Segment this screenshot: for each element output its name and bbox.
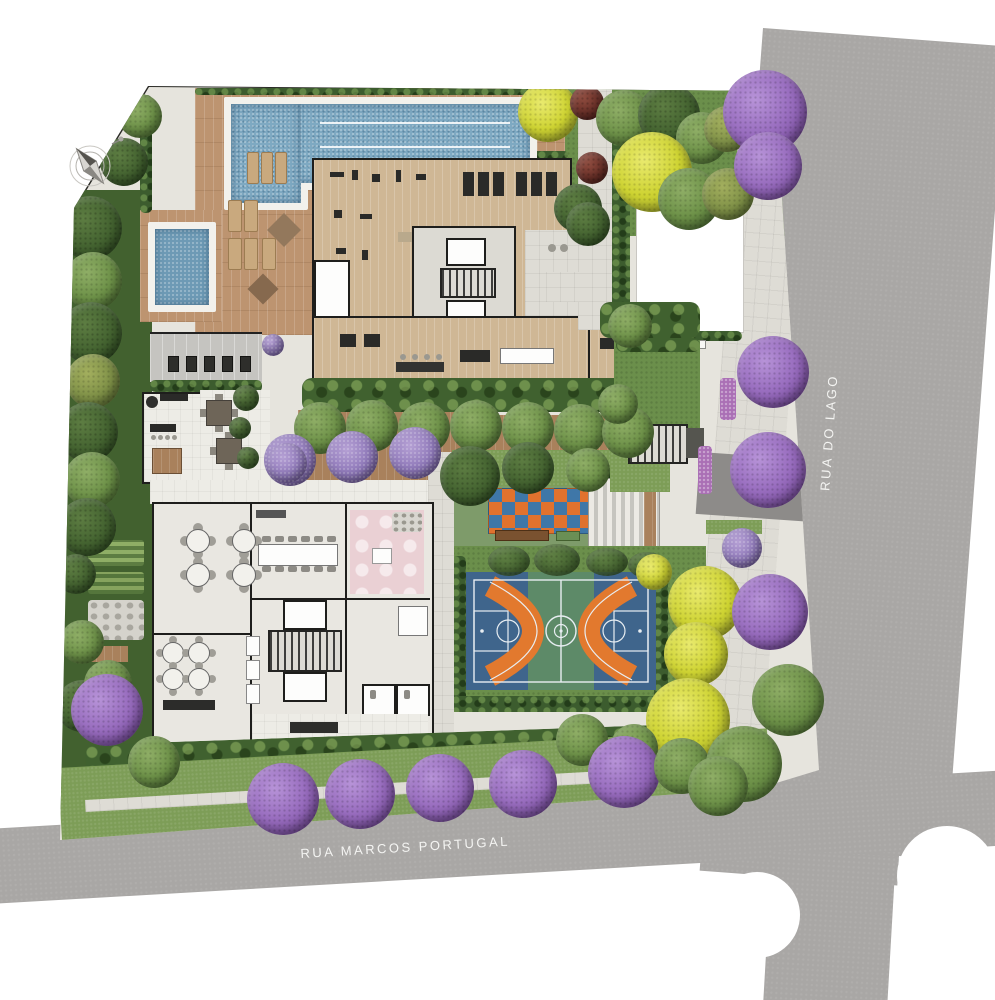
stool (151, 435, 156, 440)
bar-stool (424, 354, 430, 360)
gym-equipment (360, 214, 372, 219)
dining-table (258, 544, 338, 566)
site-plan: RUA MARCOS PORTUGAL RUA DO LAGO (0, 0, 995, 1000)
green-tree (450, 400, 502, 452)
dining-chair (262, 566, 271, 572)
treadmill (546, 172, 557, 196)
dining-chair (301, 566, 310, 572)
north-arrow-icon (50, 132, 136, 194)
buffet-table (246, 660, 260, 680)
kitchen-table (152, 448, 182, 474)
stairwell (268, 630, 342, 672)
terrace-chair (560, 244, 568, 252)
gym-equipment (416, 174, 426, 180)
purple-tree (247, 763, 319, 835)
treadmill (463, 172, 474, 196)
round-table (162, 642, 184, 664)
purple-tree (732, 574, 808, 650)
gym-bathrooms (314, 260, 350, 318)
wall (345, 502, 347, 748)
purple-tree (734, 132, 802, 200)
sideboard (256, 510, 286, 518)
treadmill (478, 172, 489, 196)
gym-equipment (334, 210, 342, 218)
olive-tree (66, 354, 120, 408)
kids-pool-water (155, 229, 209, 305)
round-table (188, 642, 210, 664)
green-tree (58, 196, 122, 260)
plaza-table (206, 400, 232, 426)
dining-chair (314, 536, 323, 542)
bar-stool (400, 354, 406, 360)
path-branch (546, 272, 580, 302)
dining-chair (288, 536, 297, 542)
pebble-decor (392, 512, 422, 532)
purple-tree (71, 674, 143, 746)
deck-lounger (228, 200, 242, 232)
palm-tree (229, 417, 251, 439)
elevator (446, 238, 486, 266)
green-tree (688, 756, 748, 816)
dining-chair (275, 566, 284, 572)
play-equipment (495, 530, 549, 541)
stool (158, 435, 163, 440)
in-pool-lounger (275, 152, 287, 184)
round-table (232, 563, 256, 587)
in-pool-lounger (261, 152, 273, 184)
purple-tree (325, 759, 395, 829)
green-tree (60, 620, 104, 664)
buffet-table (246, 636, 260, 656)
lavender-shrub (267, 443, 307, 483)
elevator (283, 672, 327, 702)
lavender-shrub (722, 528, 762, 568)
yellow-tree (636, 554, 672, 590)
round-table (188, 668, 210, 690)
purple-tree (730, 432, 806, 508)
palm-over-court (534, 544, 580, 576)
stool (165, 435, 170, 440)
palm-tree (233, 385, 259, 411)
green-tree (752, 664, 824, 736)
dining-chair (314, 566, 323, 572)
green-tree (502, 442, 554, 494)
counter-table (500, 348, 554, 364)
deck-lounger (228, 238, 242, 270)
dining-chair (327, 566, 336, 572)
hedge-deck-top (195, 88, 565, 95)
terrace-counter (290, 722, 338, 733)
purple-tree (737, 336, 809, 408)
deck-lounger (244, 238, 258, 270)
curb-corner-left (714, 872, 800, 958)
elevator (283, 600, 327, 630)
palm-tree (237, 447, 259, 469)
deck-lounger (244, 200, 258, 232)
purple-tree (406, 754, 474, 822)
green-tree (58, 498, 116, 556)
kitchen-island (150, 424, 176, 432)
palm-over-court (488, 546, 530, 576)
deck-lounger (262, 238, 276, 270)
play-equipment (556, 531, 580, 541)
hedge-court-left (452, 556, 466, 704)
red-tree (576, 152, 608, 184)
stool (172, 435, 177, 440)
storage-room (398, 606, 428, 636)
yellow-tree (518, 82, 578, 142)
grill (146, 396, 158, 408)
in-pool-lounger (247, 152, 259, 184)
skylight (204, 356, 215, 372)
flower-bed-purple (720, 378, 736, 420)
bar-stool (436, 354, 442, 360)
skylight (222, 356, 233, 372)
lane-line (320, 122, 510, 124)
wall (152, 633, 252, 635)
dining-chair (275, 536, 284, 542)
dining-chair (301, 536, 310, 542)
lavender-shrub (389, 427, 441, 479)
purple-tree (489, 750, 557, 818)
toilet (370, 690, 376, 699)
gym-equipment (362, 250, 368, 260)
treadmill (531, 172, 542, 196)
yellow-tree (664, 622, 728, 686)
dining-chair (327, 536, 336, 542)
round-table (162, 668, 184, 690)
billiards-table (460, 350, 490, 362)
gym-equipment (336, 248, 346, 254)
gym-equipment (330, 172, 344, 177)
flower-bed-purple (698, 446, 712, 494)
green-tree (608, 304, 652, 348)
toilet (404, 690, 410, 699)
lounge-table (364, 334, 380, 347)
palm-over-court (586, 548, 628, 576)
playground-checker (488, 488, 590, 534)
round-table (186, 529, 210, 553)
bathroom (396, 684, 430, 716)
bar-counter (396, 362, 444, 372)
skylight (240, 356, 251, 372)
garden-bed (88, 572, 144, 594)
skylight (168, 356, 179, 372)
terrace-chair (548, 244, 556, 252)
skylight (186, 356, 197, 372)
pergola-planter (644, 486, 656, 548)
kids-table (372, 548, 392, 564)
green-tree (128, 736, 180, 788)
bar-stool (412, 354, 418, 360)
lounge-table (340, 334, 356, 347)
lavender-shrub (262, 334, 284, 356)
palm-tree (566, 202, 610, 246)
green-tree (598, 384, 638, 424)
wall (250, 598, 430, 600)
bathroom (362, 684, 396, 716)
gym-equipment (372, 174, 380, 182)
green-tree (566, 448, 610, 492)
dining-chair (288, 566, 297, 572)
purple-tree (588, 736, 660, 808)
green-tree (440, 446, 500, 506)
kitchen-counter (160, 394, 188, 401)
green-tree (56, 554, 96, 594)
buffet-table (246, 684, 260, 704)
lane-line (320, 146, 510, 148)
basketball-court (466, 572, 656, 690)
basketball-court-lines (466, 572, 656, 690)
stairwell (440, 268, 496, 298)
gym-equipment (396, 170, 401, 182)
dining-chair (262, 536, 271, 542)
treadmill (493, 172, 504, 196)
lavender-shrub (326, 431, 378, 483)
party-bar (163, 700, 215, 710)
gym-equipment (352, 170, 358, 180)
curb-corner-right (897, 826, 995, 926)
round-table (232, 529, 256, 553)
treadmill (516, 172, 527, 196)
round-table (186, 563, 210, 587)
